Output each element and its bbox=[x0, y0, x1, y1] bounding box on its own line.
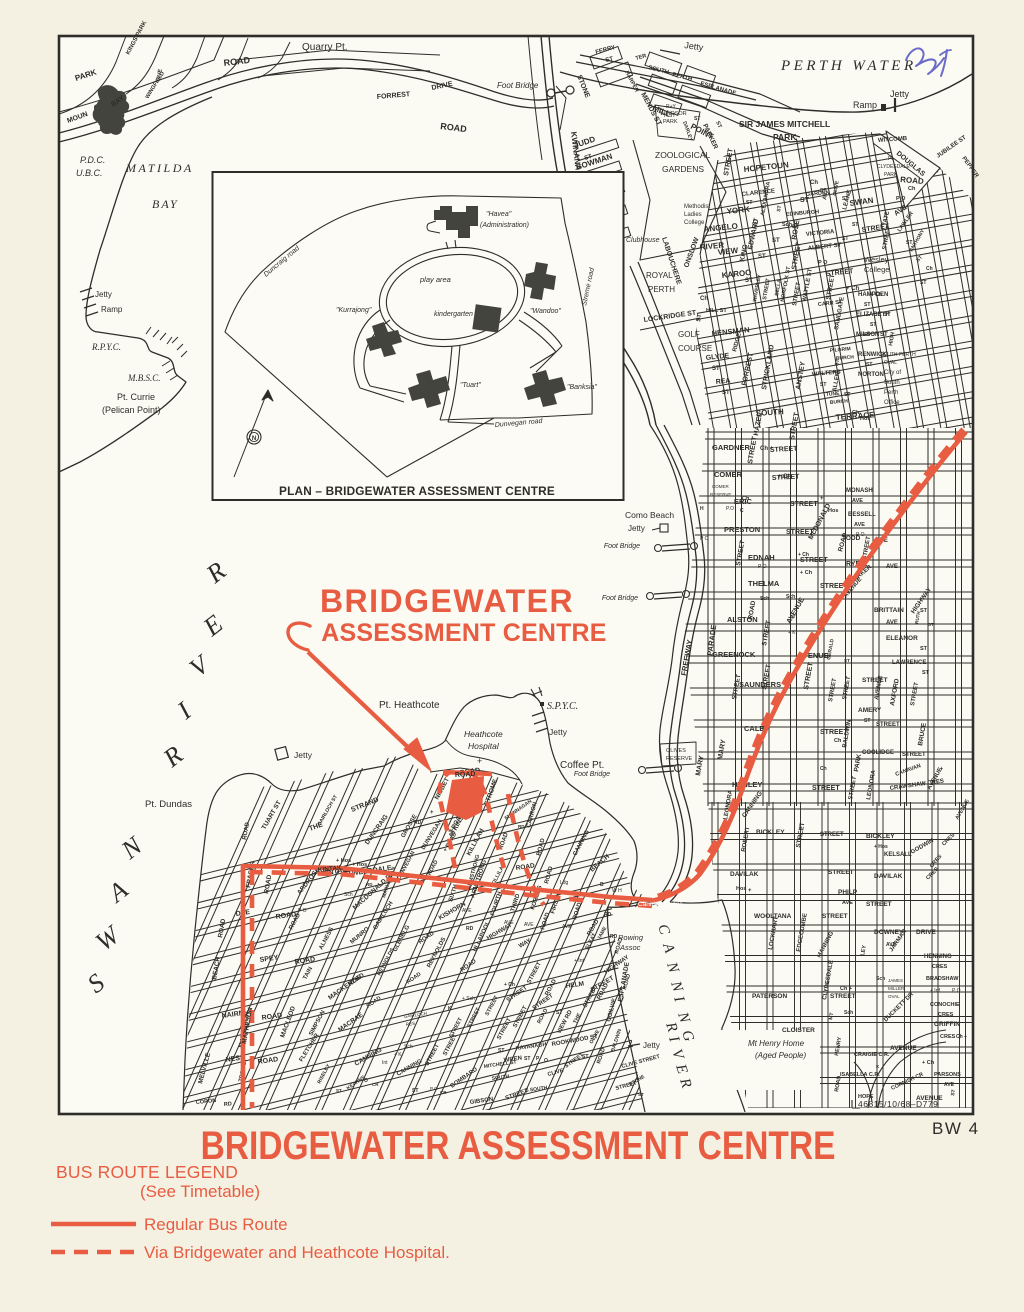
svg-text:ST: ST bbox=[820, 188, 826, 194]
svg-text:ASSESSMENT CENTRE: ASSESSMENT CENTRE bbox=[321, 619, 606, 647]
svg-text:Foot Bridge: Foot Bridge bbox=[574, 771, 610, 778]
svg-text:+ Hos: + Hos bbox=[352, 862, 367, 868]
svg-text:Coffee Pt.: Coffee Pt. bbox=[560, 760, 604, 771]
svg-text:P.D.C.: P.D.C. bbox=[80, 155, 105, 165]
svg-text:+ Ch: + Ch bbox=[800, 570, 813, 576]
svg-text:Int: Int bbox=[382, 1060, 388, 1066]
svg-text:STREET: STREET bbox=[790, 501, 818, 508]
svg-text:COMER: COMER bbox=[712, 484, 730, 489]
svg-text:+: + bbox=[430, 810, 434, 816]
svg-text:Foot Bridge: Foot Bridge bbox=[604, 543, 640, 550]
svg-text:GARDENS: GARDENS bbox=[662, 164, 704, 174]
svg-text:College: College bbox=[864, 265, 889, 274]
svg-text:Ladies: Ladies bbox=[684, 212, 702, 218]
svg-text:CLYDESDALE: CLYDESDALE bbox=[877, 164, 910, 170]
svg-text:"Kurrajong": "Kurrajong" bbox=[336, 307, 372, 314]
svg-text:MILLER: MILLER bbox=[888, 986, 905, 991]
svg-text:PARK: PARK bbox=[884, 172, 898, 178]
svg-text:BRIDGEWATER: BRIDGEWATER bbox=[320, 583, 574, 619]
svg-text:ST: ST bbox=[864, 332, 870, 338]
svg-text:P O: P O bbox=[700, 536, 709, 542]
svg-text:Ramp: Ramp bbox=[101, 305, 123, 314]
svg-text:JAMES: JAMES bbox=[888, 978, 903, 983]
svg-text:PRESTON: PRESTON bbox=[724, 525, 760, 534]
svg-text:R.P.Y.C.: R.P.Y.C. bbox=[91, 342, 121, 352]
svg-text:(Pelican Point): (Pelican Point) bbox=[102, 405, 161, 415]
svg-text:Inf: Inf bbox=[790, 614, 796, 620]
svg-text:PARSONS: PARSONS bbox=[934, 1072, 961, 1078]
svg-text:ST: ST bbox=[758, 254, 766, 260]
svg-text:WINDSOR: WINDSOR bbox=[660, 111, 687, 117]
svg-text:BRADSHAW: BRADSHAW bbox=[926, 976, 959, 982]
svg-text:Sch: Sch bbox=[786, 594, 795, 600]
svg-text:Hos: Hos bbox=[828, 508, 838, 514]
svg-text:AVE: AVE bbox=[852, 498, 863, 504]
svg-text:AVE: AVE bbox=[462, 908, 472, 914]
svg-text:COMER: COMER bbox=[714, 470, 743, 479]
svg-text:BESSELL: BESSELL bbox=[848, 512, 876, 518]
svg-text:ISABELLA C.R.: ISABELLA C.R. bbox=[840, 1072, 880, 1078]
svg-text:P O: P O bbox=[896, 196, 906, 202]
svg-text:Quarry Pt.: Quarry Pt. bbox=[302, 42, 348, 53]
svg-text:ST: ST bbox=[866, 362, 872, 368]
svg-text:Foot Bridge: Foot Bridge bbox=[497, 81, 539, 90]
svg-text:STREET: STREET bbox=[770, 446, 799, 454]
svg-text:TODD: TODD bbox=[842, 535, 861, 542]
svg-text:+ K: + K bbox=[394, 1052, 402, 1058]
svg-text:ST: ST bbox=[842, 236, 848, 242]
svg-text:ST: ST bbox=[638, 1092, 644, 1097]
svg-text:ST: ST bbox=[950, 1089, 957, 1096]
svg-text:OLIVES: OLIVES bbox=[666, 748, 686, 754]
svg-text:P O: P O bbox=[758, 564, 767, 570]
svg-text:Ldg: Ldg bbox=[560, 880, 569, 886]
svg-text:46815/10/68–D779: 46815/10/68–D779 bbox=[858, 1099, 938, 1109]
svg-text:(See Timetable): (See Timetable) bbox=[140, 1182, 260, 1201]
svg-text:P.O: P.O bbox=[726, 506, 734, 512]
svg-text:W H: W H bbox=[612, 888, 622, 894]
svg-text:DRIVE: DRIVE bbox=[916, 929, 937, 936]
svg-text:Sch: Sch bbox=[876, 976, 885, 982]
svg-text:"Tuart": "Tuart" bbox=[460, 382, 481, 389]
svg-text:ST: ST bbox=[844, 392, 850, 398]
svg-text:AVE: AVE bbox=[854, 522, 865, 528]
svg-text:+ Int: + Int bbox=[574, 958, 584, 964]
svg-text:OVAL: OVAL bbox=[884, 360, 897, 366]
svg-text:MT: MT bbox=[828, 1012, 835, 1020]
svg-text:Wesley: Wesley bbox=[864, 255, 889, 264]
svg-text:ST: ST bbox=[864, 718, 870, 724]
svg-text:Jetty: Jetty bbox=[95, 290, 112, 299]
svg-text:M.B.S.C.: M.B.S.C. bbox=[127, 373, 161, 383]
svg-text:Como Beach: Como Beach bbox=[625, 510, 674, 520]
svg-text:OVAL: OVAL bbox=[888, 994, 900, 999]
svg-text:+: + bbox=[940, 766, 943, 772]
svg-text:P O: P O bbox=[430, 1086, 438, 1091]
svg-text:NORTON: NORTON bbox=[858, 372, 884, 378]
svg-text:ST: ST bbox=[772, 238, 780, 244]
svg-text:Ch: Ch bbox=[834, 738, 842, 744]
svg-text:play area: play area bbox=[419, 275, 451, 284]
svg-text:ST: ST bbox=[498, 1048, 504, 1054]
svg-text:CRES: CRES bbox=[940, 1034, 956, 1040]
svg-text:RD: RD bbox=[366, 882, 373, 887]
svg-text:RD: RD bbox=[518, 824, 525, 829]
svg-text:COURSE: COURSE bbox=[678, 344, 712, 353]
svg-text:ROYAL: ROYAL bbox=[646, 271, 673, 280]
svg-text:STREET: STREET bbox=[800, 557, 828, 564]
svg-text:+ Ch: + Ch bbox=[798, 552, 809, 558]
svg-text:Ch: Ch bbox=[742, 496, 750, 502]
svg-text:AVE: AVE bbox=[886, 620, 898, 626]
svg-text:DAVILAK: DAVILAK bbox=[874, 873, 903, 880]
svg-text:ST: ST bbox=[582, 1054, 588, 1060]
svg-text:+ Hos: + Hos bbox=[336, 858, 351, 864]
svg-text:AVE: AVE bbox=[886, 564, 898, 570]
svg-text:Ch: Ch bbox=[700, 296, 708, 302]
svg-text:HENNING: HENNING bbox=[924, 954, 952, 960]
svg-text:"Banksia": "Banksia" bbox=[567, 384, 597, 391]
svg-text:STREET: STREET bbox=[830, 993, 856, 1000]
svg-text:Pt. Heathcote: Pt. Heathcote bbox=[379, 700, 440, 711]
svg-text:STREET: STREET bbox=[866, 901, 892, 908]
svg-text:+ Ch: + Ch bbox=[778, 474, 792, 480]
svg-text:BAY: BAY bbox=[152, 197, 179, 211]
svg-text:Ch: Ch bbox=[908, 186, 916, 192]
svg-text:ST: ST bbox=[712, 366, 720, 372]
svg-text:"Havea": "Havea" bbox=[486, 211, 512, 218]
svg-text:+ Ch: + Ch bbox=[504, 982, 515, 988]
svg-text:RD: RD bbox=[604, 912, 612, 918]
svg-text:PERTH WATER: PERTH WATER bbox=[780, 58, 917, 74]
svg-text:STREET: STREET bbox=[820, 832, 844, 838]
svg-text:PARK: PARK bbox=[663, 119, 678, 125]
svg-text:CRES: CRES bbox=[932, 964, 948, 970]
svg-text:MONASH: MONASH bbox=[846, 488, 873, 494]
svg-text:Ch: Ch bbox=[820, 766, 827, 772]
svg-text:THELMA: THELMA bbox=[748, 579, 780, 588]
svg-text:N: N bbox=[252, 436, 256, 442]
svg-text:(Aged People): (Aged People) bbox=[755, 1051, 806, 1060]
svg-text:ST: ST bbox=[920, 608, 928, 614]
svg-text:STREET: STREET bbox=[822, 913, 848, 920]
svg-text:Heathcote: Heathcote bbox=[464, 729, 503, 739]
svg-text:ST: ST bbox=[412, 1088, 418, 1094]
svg-text:CR: CR bbox=[440, 1090, 447, 1095]
svg-text:Hos: Hos bbox=[860, 416, 870, 422]
svg-text:STREET: STREET bbox=[828, 869, 854, 876]
svg-text:Office: Office bbox=[884, 400, 900, 406]
svg-text:ST: ST bbox=[844, 658, 850, 663]
svg-text:RD: RD bbox=[466, 926, 474, 932]
svg-text:Sch: Sch bbox=[844, 1010, 853, 1016]
svg-text:Ch +: Ch + bbox=[840, 986, 852, 992]
svg-text:+: + bbox=[748, 888, 752, 894]
svg-text:SIR JAMES MITCHELL: SIR JAMES MITCHELL bbox=[739, 119, 830, 129]
svg-text:ST: ST bbox=[745, 278, 753, 284]
svg-text:South: South bbox=[884, 380, 900, 386]
svg-text:Sch: Sch bbox=[344, 892, 353, 898]
svg-text:MATILDA: MATILDA bbox=[125, 161, 194, 175]
svg-text:CRAIGIE C.R.: CRAIGIE C.R. bbox=[854, 1052, 890, 1058]
svg-text:+: + bbox=[820, 496, 824, 502]
svg-text:Pt. Currie: Pt. Currie bbox=[117, 392, 155, 402]
svg-text:LAWRENCE: LAWRENCE bbox=[892, 660, 926, 666]
svg-text:BRIDGEWATER ASSESSMENT CENTRE: BRIDGEWATER ASSESSMENT CENTRE bbox=[201, 1123, 836, 1167]
svg-text:AVE: AVE bbox=[944, 1082, 955, 1088]
svg-text:DAVILAK: DAVILAK bbox=[730, 871, 759, 878]
svg-text:CR: CR bbox=[372, 1082, 379, 1087]
svg-text:AVE: AVE bbox=[524, 922, 534, 928]
svg-text:PERTH: PERTH bbox=[648, 285, 675, 294]
svg-text:Perth: Perth bbox=[884, 390, 898, 396]
svg-text:AMERY: AMERY bbox=[858, 707, 882, 714]
svg-text:ST: ST bbox=[524, 1056, 530, 1062]
svg-text:RD: RD bbox=[414, 820, 422, 826]
svg-text:C: C bbox=[740, 508, 744, 514]
svg-text:BW 4: BW 4 bbox=[932, 1119, 980, 1138]
svg-text:+ Hos: + Hos bbox=[874, 844, 888, 850]
svg-text:ST: ST bbox=[870, 322, 876, 328]
svg-text:Jetty: Jetty bbox=[549, 727, 568, 737]
svg-text:Ch: Ch bbox=[926, 266, 933, 272]
svg-text:RESERVE: RESERVE bbox=[666, 756, 693, 762]
svg-text:Canning Bridge: Canning Bridge bbox=[638, 901, 683, 908]
svg-text:K: K bbox=[448, 1006, 452, 1012]
svg-text:AVE: AVE bbox=[886, 942, 897, 948]
svg-text:P O: P O bbox=[952, 988, 961, 994]
svg-text:ELEANOR: ELEANOR bbox=[886, 635, 918, 642]
svg-text:Via Bridgewater and Heathcote: Via Bridgewater and Heathcote Hospital. bbox=[144, 1243, 450, 1262]
svg-text:Ch +: Ch + bbox=[760, 446, 774, 452]
svg-text:+ Sch: + Sch bbox=[462, 996, 475, 1002]
svg-text:STREET: STREET bbox=[876, 722, 900, 728]
svg-text:kindergarten: kindergarten bbox=[434, 311, 473, 318]
svg-text:Ch: Ch bbox=[852, 410, 860, 416]
svg-text:ZOOLOGICAL: ZOOLOGICAL bbox=[655, 150, 711, 160]
svg-text:P O: P O bbox=[298, 908, 307, 914]
svg-text:ST: ST bbox=[928, 622, 934, 627]
svg-text:BICKLEY: BICKLEY bbox=[866, 833, 895, 840]
svg-text:ST: ST bbox=[694, 116, 700, 122]
svg-text:ST: ST bbox=[922, 670, 930, 676]
svg-text:Methodist: Methodist bbox=[684, 204, 710, 210]
svg-text:Sch: Sch bbox=[404, 1044, 413, 1050]
svg-text:ST: ST bbox=[884, 312, 890, 318]
svg-text:Sch: Sch bbox=[760, 596, 769, 602]
svg-text:+ Inf: + Inf bbox=[930, 988, 940, 994]
svg-text:Pt. Dundas: Pt. Dundas bbox=[145, 799, 192, 810]
svg-text:ST: ST bbox=[776, 205, 783, 212]
svg-text:+ Ch: + Ch bbox=[922, 1060, 935, 1066]
svg-text:Foot Bridge: Foot Bridge bbox=[602, 595, 638, 602]
svg-text:Clubhouse: Clubhouse bbox=[626, 237, 660, 244]
svg-text:H: H bbox=[700, 506, 704, 512]
svg-text:CONOCHIE: CONOCHIE bbox=[930, 1002, 960, 1008]
svg-text:ST: ST bbox=[880, 332, 888, 338]
svg-text:ST: ST bbox=[920, 280, 926, 286]
svg-text:+ Ch: + Ch bbox=[870, 292, 883, 298]
svg-text:Jetty: Jetty bbox=[643, 1041, 660, 1050]
svg-text:Ch +: Ch + bbox=[956, 1034, 967, 1040]
svg-text:S.P.Y.C.: S.P.Y.C. bbox=[547, 701, 578, 712]
svg-text:COOLIDGE: COOLIDGE bbox=[862, 750, 894, 756]
svg-text:EDNAH: EDNAH bbox=[748, 553, 775, 562]
svg-text:SAUNDERS: SAUNDERS bbox=[739, 680, 781, 689]
svg-text:(Administration): (Administration) bbox=[480, 222, 529, 229]
svg-text:P O: P O bbox=[818, 260, 828, 266]
svg-text:Mt Henry Home: Mt Henry Home bbox=[748, 1039, 805, 1048]
svg-text:ST: ST bbox=[920, 646, 928, 652]
svg-text:CRES: CRES bbox=[938, 1012, 954, 1018]
svg-text:BRITTAIN: BRITTAIN bbox=[874, 607, 904, 614]
svg-text:ST: ST bbox=[800, 197, 810, 204]
svg-text:KELSALL: KELSALL bbox=[884, 852, 912, 858]
svg-text:ST: ST bbox=[722, 390, 730, 396]
svg-text:STREET: STREET bbox=[812, 785, 840, 792]
svg-text:+ K: + K bbox=[788, 630, 796, 636]
svg-text:ST: ST bbox=[864, 302, 870, 308]
svg-text:Jetty: Jetty bbox=[294, 750, 313, 760]
svg-text:ST: ST bbox=[556, 1010, 562, 1016]
svg-text:City of: City of bbox=[884, 370, 901, 376]
svg-text:ST: ST bbox=[820, 382, 826, 388]
svg-text:B: B bbox=[600, 882, 604, 888]
svg-text:O: O bbox=[544, 1058, 548, 1064]
svg-text:PLAN – BRIDGEWATER ASSESSMENT: PLAN – BRIDGEWATER ASSESSMENT CENTRE bbox=[279, 484, 555, 498]
svg-text:GRIFFIN: GRIFFIN bbox=[934, 1021, 960, 1028]
svg-text:RD: RD bbox=[610, 934, 618, 940]
svg-text:GARDNER: GARDNER bbox=[712, 443, 751, 452]
svg-text:RD: RD bbox=[224, 1101, 233, 1108]
svg-text:"Wandoo": "Wandoo" bbox=[530, 308, 561, 315]
svg-text:BICKLEY: BICKLEY bbox=[756, 829, 785, 836]
svg-text:ST: ST bbox=[852, 222, 858, 228]
svg-text:STREET: STREET bbox=[902, 752, 926, 758]
svg-text:AVE: AVE bbox=[842, 900, 853, 906]
svg-text:GREENOCK: GREENOCK bbox=[712, 650, 756, 659]
svg-text:ST: ST bbox=[336, 1088, 342, 1093]
svg-text:Ch: Ch bbox=[810, 180, 818, 186]
svg-text:O: O bbox=[364, 1078, 368, 1084]
svg-text:CALE: CALE bbox=[744, 724, 764, 733]
svg-text:HILL ST: HILL ST bbox=[706, 308, 727, 314]
svg-text:AVE: AVE bbox=[562, 924, 572, 930]
svg-text:PHILP: PHILP bbox=[838, 889, 858, 896]
svg-text:U.B.C.: U.B.C. bbox=[76, 168, 103, 178]
svg-text:Regular Bus Route: Regular Bus Route bbox=[144, 1215, 288, 1234]
svg-text:RESERVE: RESERVE bbox=[710, 492, 731, 497]
svg-text:PL: PL bbox=[888, 156, 894, 162]
svg-text:BUS ROUTE LEGEND: BUS ROUTE LEGEND bbox=[56, 1162, 238, 1182]
svg-text:Jetty: Jetty bbox=[628, 524, 645, 533]
svg-text:College: College bbox=[684, 220, 705, 226]
svg-text:Hos: Hos bbox=[736, 886, 746, 892]
svg-text:SOUTH PERTH: SOUTH PERTH bbox=[880, 352, 916, 358]
svg-text:Hospital: Hospital bbox=[468, 741, 500, 751]
svg-text:CLOISTER: CLOISTER bbox=[782, 1027, 815, 1034]
svg-text:PATERSON: PATERSON bbox=[752, 993, 787, 1000]
svg-text:Ramp: Ramp bbox=[853, 100, 877, 110]
svg-text:PARK: PARK bbox=[773, 132, 797, 142]
svg-text:Jetty: Jetty bbox=[890, 89, 910, 99]
